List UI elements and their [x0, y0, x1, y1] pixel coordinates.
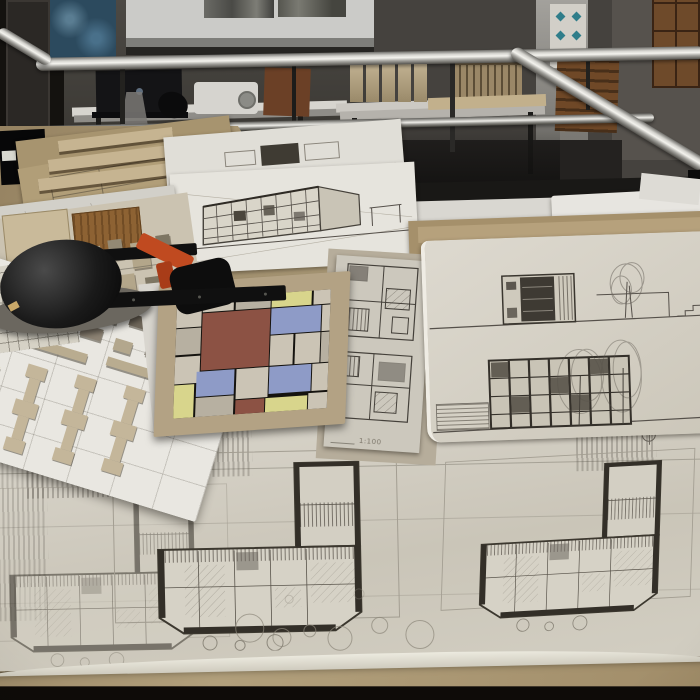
- h-shaped-piece: [99, 384, 148, 476]
- mondrian-tile: [195, 369, 234, 397]
- h-shaped-piece: [50, 374, 99, 466]
- projector-lens-icon: [238, 91, 256, 109]
- mondrian-tile: [265, 395, 307, 412]
- chair: [263, 67, 311, 117]
- mondrian-tile: [173, 384, 194, 419]
- mondrian-tile: [271, 305, 321, 335]
- diamond-icon: [571, 31, 581, 41]
- device-label: [2, 150, 17, 161]
- mondrian-tile: [322, 305, 331, 332]
- mondrian-tile: [270, 334, 294, 365]
- elevation-sheet: [421, 231, 700, 443]
- h-shaped-piece: [1, 363, 50, 455]
- mondrian-tile: [312, 363, 328, 391]
- diamond-icon: [555, 12, 565, 22]
- slide-photo-left: [204, 0, 274, 18]
- mondrian-tile: [308, 392, 327, 410]
- mondrian-tile: [201, 309, 270, 371]
- wooden-lockers: [652, 0, 700, 88]
- diamond-icon: [571, 12, 581, 22]
- slide-photo-right: [278, 0, 346, 17]
- card-piece: [112, 338, 133, 355]
- projection-screen: [126, 0, 374, 40]
- diamond-icon: [555, 31, 565, 41]
- handwriting-squiggle: [330, 437, 357, 444]
- mondrian-tile: [294, 333, 320, 364]
- knob-notch: [8, 301, 20, 312]
- mondrian-tile: [269, 364, 311, 394]
- mondrian-tile: [235, 367, 268, 399]
- scale-label: 1:100: [359, 437, 382, 447]
- projector: [194, 82, 258, 114]
- studio-photo: 1:100: [0, 0, 700, 700]
- mondrian-tile: [320, 332, 329, 362]
- elevations-drawing: [425, 231, 700, 443]
- mondrian-tile: [176, 328, 201, 356]
- table-front-edge: [0, 686, 700, 700]
- floor-plan-right: [417, 433, 700, 648]
- tree-circles: [229, 584, 450, 661]
- mondrian-tile: [235, 398, 265, 414]
- railing-post: [450, 54, 455, 152]
- screen-casing: [126, 38, 374, 47]
- mondrian-tile: [195, 396, 234, 418]
- blue-poster: [50, 0, 116, 64]
- mondrian-tile: [313, 289, 330, 304]
